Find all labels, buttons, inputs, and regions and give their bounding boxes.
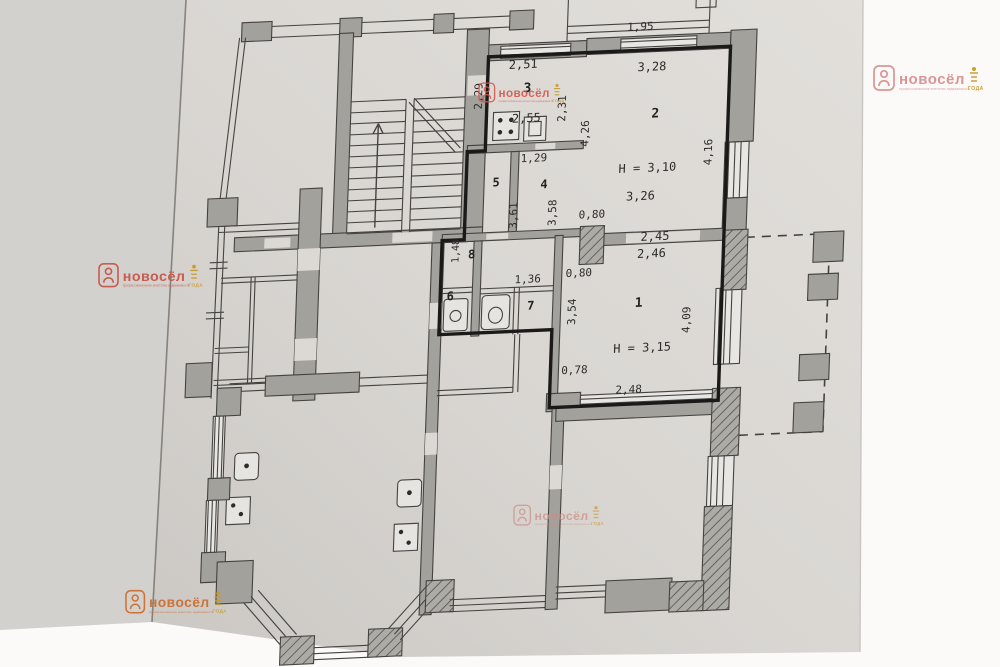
dimension-label: 3,54	[565, 298, 579, 325]
dimension-label: 0,80	[578, 208, 605, 222]
watermark-brand-text: новосёл	[149, 595, 210, 610]
watermark-badge-text: ГОДА	[552, 98, 564, 103]
room-number-label: 5	[492, 175, 500, 189]
sink-icon-2	[397, 479, 422, 507]
watermark-badge-text: ГОДА	[212, 609, 227, 614]
stove-icon-3	[393, 523, 418, 551]
watermark-tagline: профессиональное агентство недвижимости	[535, 522, 593, 526]
dimension-label: 0,80	[565, 266, 592, 280]
dimension-label: 3,58	[546, 199, 560, 226]
room-number-label: 8	[468, 247, 476, 261]
stove-icon-2	[226, 497, 251, 525]
dimension-label: 2,55	[512, 110, 541, 125]
watermark-tagline: профессиональное агентство недвижимости	[899, 87, 970, 91]
room-number-label: 6	[446, 289, 454, 303]
watermark-badge-text: ГОДА	[591, 521, 604, 526]
dimension-label: 3,61	[506, 202, 520, 229]
watermark-brand-text: новосёл	[899, 71, 965, 88]
dimension-label: 4,09	[680, 306, 694, 333]
watermark-tagline: профессиональное агентство недвижимости	[499, 99, 554, 103]
room-number-label: 7	[527, 298, 535, 312]
dimension-label: 2,46	[637, 246, 666, 261]
dimension-label: 4,16	[701, 139, 715, 166]
dimension-label: 1,36	[514, 272, 541, 286]
room-number-label: 2	[651, 106, 659, 121]
dimension-label: 3,28	[637, 59, 666, 74]
dimension-label: 0,78	[561, 363, 588, 377]
watermark-tagline: профессиональное агентство недвижимости	[149, 610, 214, 614]
dimension-label: 1,48	[450, 239, 462, 264]
ceiling-height-label: Н = 3,10	[618, 159, 676, 176]
watermark-brand-text: новосёл	[535, 509, 589, 523]
dimension-label: 3,26	[626, 188, 655, 203]
dimension-label: 1,95	[627, 20, 654, 34]
sink-icon	[234, 452, 259, 480]
room-number-label: 1	[634, 296, 643, 311]
watermark-badge-text: ГОДА	[968, 86, 984, 92]
floorplan-scan: 1,952,513,282,2932,552,3124,264,16Н = 3,…	[0, 0, 1000, 667]
dimension-label: 2,51	[509, 57, 538, 72]
toilet-icon	[443, 298, 468, 331]
dimension-label: 4,26	[578, 120, 592, 147]
dimension-label: 2,45	[640, 229, 669, 244]
dimension-label: 2,48	[615, 383, 642, 397]
ceiling-height-label: Н = 3,15	[613, 339, 671, 356]
dimension-label: 1,29	[520, 151, 547, 165]
watermark-brand-text: новосёл	[499, 87, 550, 100]
watermark-tagline: профессиональное агентство недвижимости	[123, 284, 190, 288]
watermark-badge-text: ГОДА	[188, 283, 203, 289]
watermark-brand-text: новосёл	[123, 269, 186, 285]
room-number-label: 4	[540, 177, 548, 191]
bath-icon	[481, 295, 510, 330]
scanned-floorplan-page: { "document": { "type": "floor-plan-scan…	[0, 0, 1000, 667]
